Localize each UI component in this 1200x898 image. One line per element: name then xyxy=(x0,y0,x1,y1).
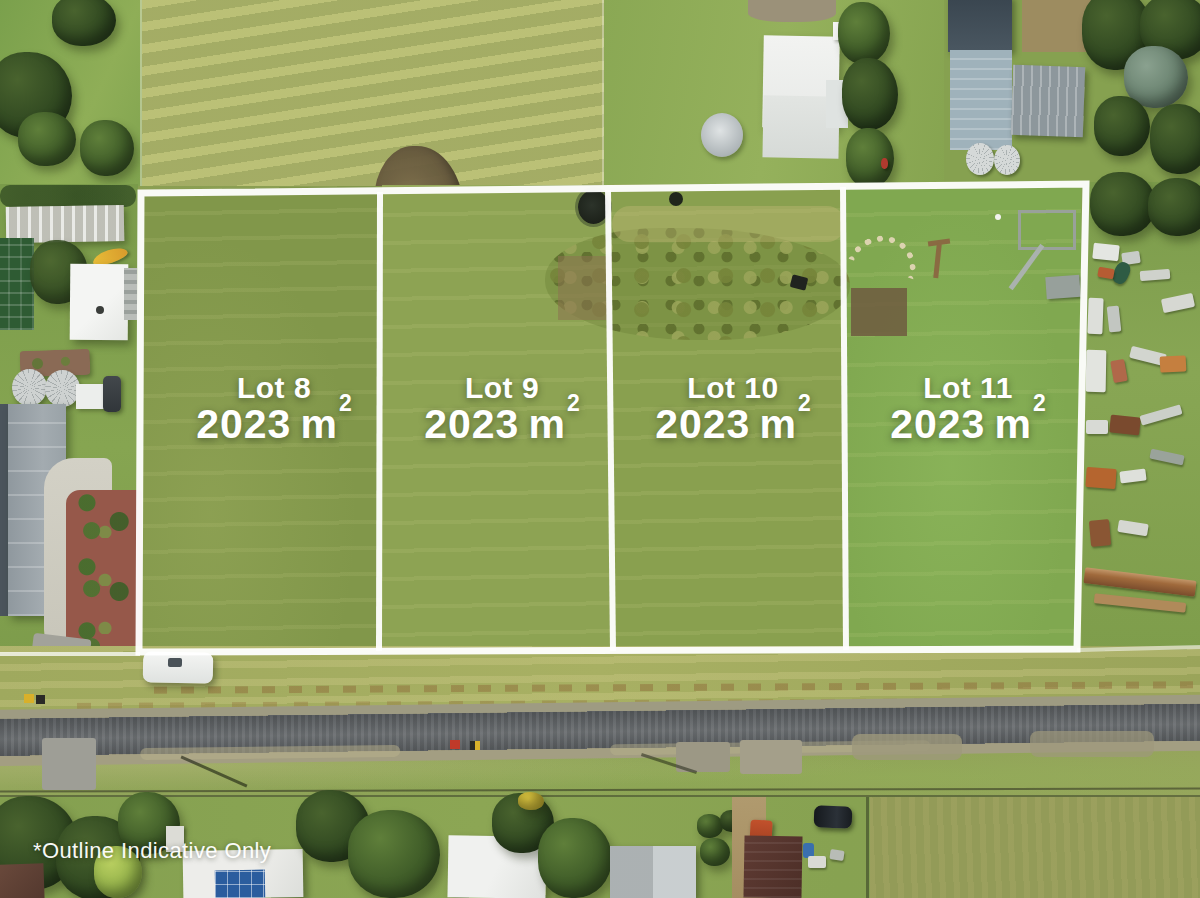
lot-area: 2023 m2 xyxy=(372,403,632,446)
lot-8-label: Lot 8 2023 m2 xyxy=(144,372,404,446)
lot-area: 2023 m2 xyxy=(144,403,404,446)
aerial-photo: Lot 8 2023 m2 Lot 9 2023 m2 Lot 10 2023 … xyxy=(0,0,1200,898)
lot-9-label: Lot 9 2023 m2 xyxy=(372,372,632,446)
lot-boundary-overlay xyxy=(0,0,1200,898)
lot-area: 2023 m2 xyxy=(603,403,863,446)
lot-name: Lot 11 xyxy=(838,372,1098,403)
lot-name: Lot 8 xyxy=(144,372,404,403)
lot-10-label: Lot 10 2023 m2 xyxy=(603,372,863,446)
lot-area: 2023 m2 xyxy=(838,403,1098,446)
disclaimer-text: *Outline Indicative Only xyxy=(33,838,271,864)
lot-11-label: Lot 11 2023 m2 xyxy=(838,372,1098,446)
lot-name: Lot 10 xyxy=(603,372,863,403)
fence-extension xyxy=(1077,647,1200,650)
lot-name: Lot 9 xyxy=(372,372,632,403)
